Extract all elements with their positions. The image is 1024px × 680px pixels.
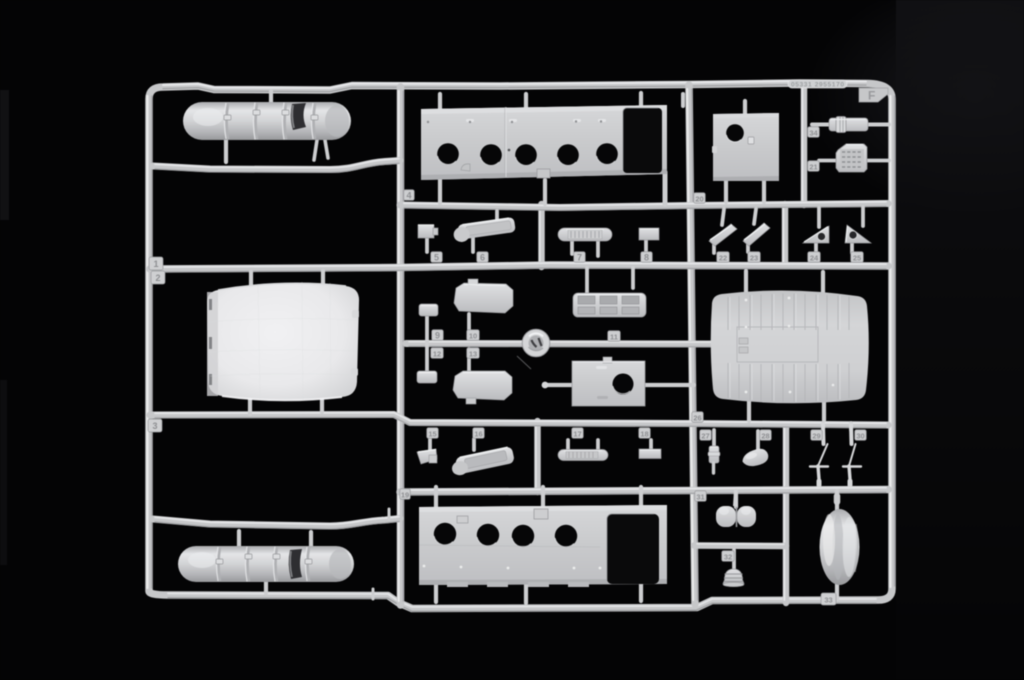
- svg-text:3: 3: [152, 421, 157, 431]
- svg-text:12: 12: [433, 350, 441, 359]
- svg-text:9: 9: [435, 331, 440, 341]
- svg-text:8: 8: [644, 253, 649, 263]
- svg-text:05331 2955170: 05331 2955170: [791, 82, 844, 89]
- svg-text:13: 13: [469, 350, 477, 359]
- svg-text:5: 5: [434, 253, 439, 263]
- svg-text:18: 18: [640, 430, 648, 439]
- svg-text:7: 7: [577, 253, 582, 263]
- svg-text:17: 17: [573, 430, 581, 439]
- svg-text:10: 10: [469, 332, 477, 341]
- svg-text:F: F: [868, 89, 875, 103]
- svg-text:21: 21: [809, 163, 817, 172]
- svg-text:19: 19: [401, 491, 409, 500]
- svg-text:32: 32: [724, 553, 732, 562]
- svg-text:29: 29: [812, 432, 820, 441]
- svg-text:16: 16: [474, 430, 482, 439]
- svg-text:25: 25: [853, 254, 861, 263]
- svg-text:27: 27: [701, 432, 709, 441]
- svg-text:11: 11: [610, 333, 618, 342]
- svg-text:28: 28: [761, 432, 769, 441]
- svg-text:20: 20: [695, 195, 703, 204]
- svg-text:23: 23: [750, 254, 758, 263]
- svg-text:26: 26: [693, 414, 701, 423]
- svg-text:30: 30: [856, 432, 864, 441]
- svg-text:24: 24: [810, 254, 819, 263]
- svg-text:34: 34: [809, 129, 818, 138]
- svg-text:2: 2: [155, 273, 160, 283]
- svg-text:6: 6: [480, 253, 485, 263]
- svg-text:31: 31: [696, 493, 704, 502]
- svg-text:4: 4: [406, 191, 411, 201]
- svg-text:1: 1: [153, 259, 158, 269]
- svg-text:22: 22: [719, 254, 727, 263]
- svg-text:33: 33: [824, 596, 832, 605]
- svg-text:15: 15: [428, 430, 436, 439]
